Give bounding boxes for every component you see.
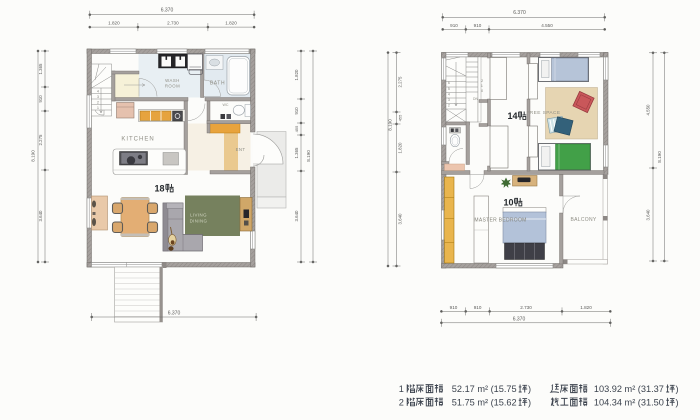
svg-text:): ) [528, 397, 531, 407]
svg-text:1.820: 1.820 [398, 142, 403, 154]
svg-text:6.370: 6.370 [513, 10, 526, 16]
svg-text:5: 5 [448, 87, 450, 91]
svg-text:MASTER BEDROOM: MASTER BEDROOM [474, 218, 526, 224]
svg-text:6: 6 [448, 81, 450, 85]
svg-text:DN: DN [473, 97, 478, 101]
svg-text:1.365: 1.365 [294, 147, 299, 159]
svg-text:8.190: 8.190 [657, 151, 662, 163]
svg-text:6.370: 6.370 [161, 8, 174, 14]
svg-text:LIVING: LIVING [190, 213, 207, 218]
svg-text:3: 3 [448, 98, 450, 102]
svg-text:910: 910 [450, 305, 458, 310]
svg-text:910: 910 [294, 107, 299, 115]
svg-text:1.820: 1.820 [580, 305, 592, 310]
svg-text:KITCHEN: KITCHEN [121, 137, 154, 143]
svg-text:WC: WC [223, 103, 229, 107]
svg-text:2.275: 2.275 [398, 76, 403, 88]
svg-text:4.550: 4.550 [541, 23, 553, 28]
svg-text:4.550: 4.550 [646, 104, 651, 116]
svg-text:BATH: BATH [210, 81, 225, 87]
svg-text:BALCONY: BALCONY [571, 217, 597, 223]
svg-text:1.820: 1.820 [294, 69, 299, 81]
svg-text:3.640: 3.640 [646, 209, 651, 221]
svg-text:4: 4 [97, 90, 99, 94]
svg-text:3: 3 [97, 95, 99, 99]
svg-text:104.34 m² (31.50: 104.34 m² (31.50 [594, 397, 664, 407]
svg-text:1: 1 [97, 106, 99, 110]
svg-text:52.17 m² (15.75: 52.17 m² (15.75 [452, 384, 517, 394]
svg-text:8.190: 8.190 [306, 150, 311, 162]
svg-text:1.820: 1.820 [225, 20, 237, 25]
svg-text:455: 455 [294, 125, 299, 132]
svg-text:4: 4 [448, 93, 450, 97]
svg-text:2.275: 2.275 [38, 134, 43, 146]
svg-text:103.92 m² (31.37: 103.92 m² (31.37 [594, 384, 664, 394]
svg-text:): ) [528, 384, 531, 394]
svg-text:3.640: 3.640 [294, 210, 299, 222]
svg-text:3.640: 3.640 [398, 213, 403, 225]
svg-text:10: 10 [503, 198, 513, 208]
svg-text:910: 910 [474, 23, 482, 28]
svg-text:18: 18 [154, 184, 164, 194]
svg-text:1: 1 [399, 384, 404, 394]
svg-text:1.820: 1.820 [108, 20, 120, 25]
svg-text:ROOM: ROOM [165, 84, 180, 89]
svg-text:455: 455 [398, 114, 403, 121]
svg-text:910: 910 [474, 305, 482, 310]
svg-text:2.730: 2.730 [167, 20, 179, 25]
svg-text:8.190: 8.190 [388, 119, 393, 131]
svg-text:8.190: 8.190 [31, 150, 36, 162]
svg-text:2: 2 [97, 101, 99, 105]
svg-text:2: 2 [448, 104, 450, 108]
svg-text:ENT: ENT [236, 147, 246, 152]
svg-text:2: 2 [399, 397, 404, 407]
svg-text:910: 910 [38, 95, 43, 103]
svg-text:6.370: 6.370 [513, 316, 526, 322]
svg-text:14: 14 [507, 111, 517, 121]
svg-text:51.75 m² (15.62: 51.75 m² (15.62 [452, 397, 517, 407]
svg-text:910: 910 [450, 23, 458, 28]
svg-text:2.730: 2.730 [520, 305, 532, 310]
svg-text:3.640: 3.640 [38, 210, 43, 222]
svg-text:): ) [676, 384, 679, 394]
svg-text:1.365: 1.365 [38, 63, 43, 75]
svg-text:WASH: WASH [165, 78, 180, 83]
svg-text:6.370: 6.370 [168, 311, 181, 317]
svg-text:DINING: DINING [190, 219, 208, 224]
svg-text:FREE SPACE: FREE SPACE [526, 110, 560, 116]
svg-text:): ) [676, 397, 679, 407]
